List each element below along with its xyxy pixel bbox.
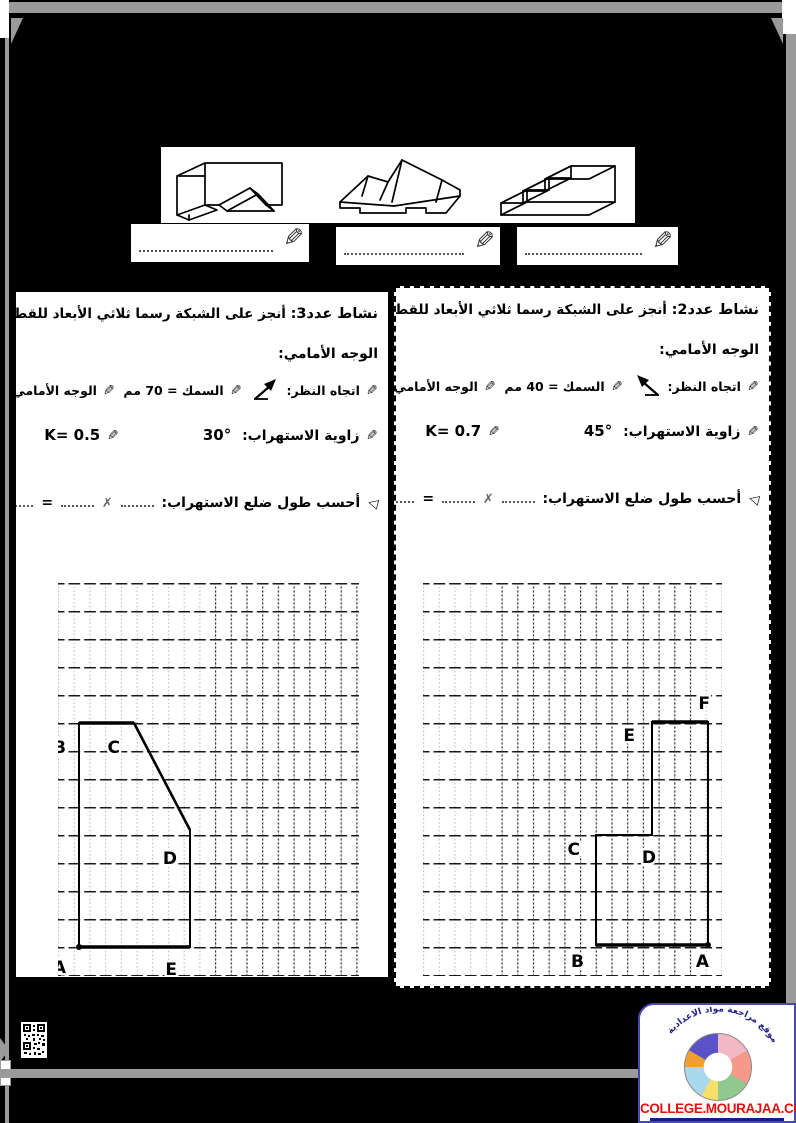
angle-value: 45° bbox=[584, 420, 612, 443]
equals-sign: = bbox=[422, 491, 434, 507]
arrow-bullet-icon: ◁ bbox=[747, 489, 762, 510]
pencil-icon: ✎ bbox=[747, 377, 759, 398]
pencil-icon: ✎ bbox=[366, 381, 378, 402]
isometric-shape-1 bbox=[167, 149, 317, 221]
thickness-item: ✎ السمك = 40 مم bbox=[500, 379, 623, 394]
isometric-figures-box bbox=[161, 147, 635, 223]
vertex-dot-A bbox=[705, 942, 711, 948]
vertex-label-E: E bbox=[165, 960, 177, 979]
dotted-answer-line bbox=[525, 253, 642, 255]
activity-3-panel: نشاط عدد3: أنجز على الشبكة رسما ثلاثي ال… bbox=[14, 290, 390, 979]
angle-label: زاوية الاستهراب: bbox=[242, 428, 359, 444]
arrow-bullet-icon: ◁ bbox=[366, 493, 381, 514]
site-url-text: COLLEGE.MOURAJAA.COM bbox=[640, 1101, 794, 1116]
activity-number: نشاط عدد2: bbox=[672, 302, 759, 318]
pencil-icon: ✎ bbox=[652, 228, 673, 253]
activity-3-specs: ✎ اتجاه النظر: ✎ السمك = 70 مم ✎ الوجه ا… bbox=[24, 377, 378, 402]
angle-item: ✎ زاوية الاستهراب: 30° bbox=[203, 424, 378, 447]
activity-2-angle-line: ✎ زاوية الاستهراب: 45° ✎ K= 0.7 bbox=[404, 420, 759, 443]
thickness-item: ✎ السمك = 70 مم bbox=[119, 383, 242, 398]
isometric-shape-2 bbox=[330, 150, 470, 220]
view-direction-label: اتجاه النظر: bbox=[667, 379, 740, 394]
activity-number: نشاط عدد3: bbox=[291, 306, 378, 322]
pencil-icon: ✎ bbox=[103, 381, 115, 402]
vertex-label-E: E bbox=[623, 726, 635, 746]
scan-top-bar bbox=[0, 2, 796, 13]
isometric-shape-3 bbox=[483, 150, 629, 220]
pencil-icon: ✎ bbox=[484, 377, 496, 398]
answer-box-3: ✎ bbox=[517, 227, 678, 265]
k-value: K= 0.5 bbox=[44, 424, 100, 447]
thickness-value: السمك = 40 مم bbox=[504, 379, 604, 394]
pencil-icon: ✎ bbox=[474, 228, 495, 253]
multiply-sign: ✗ bbox=[483, 492, 494, 507]
blank-field bbox=[502, 490, 535, 503]
scan-right-strip bbox=[786, 0, 796, 1123]
worksheet-page: ✎ ✎ ✎ نشاط عدد2: أنجز على الشبكة رسما ثل… bbox=[0, 0, 796, 1123]
vertex-label-B: B bbox=[58, 738, 66, 758]
blank-field bbox=[442, 490, 475, 503]
scan-bottom-band bbox=[0, 1069, 640, 1078]
grid-dark-band bbox=[203, 583, 359, 976]
vertex-label-D: D bbox=[642, 848, 656, 868]
subjects-wheel-logo bbox=[684, 1033, 752, 1101]
answer-box-1: ✎ bbox=[131, 224, 309, 262]
front-face-label: الوجه الأمامي: bbox=[14, 383, 97, 398]
dotted-answer-line bbox=[139, 250, 273, 252]
thickness-value: السمك = 70 مم bbox=[123, 383, 223, 398]
activity-2-compute-line: ◁ أحسب طول ضلع الاستهراب: ✗ = bbox=[404, 489, 759, 510]
angle-value: 30° bbox=[203, 424, 231, 447]
activity-3-compute-line: ◁ أحسب طول ضلع الاستهراب: ✗ = bbox=[24, 493, 378, 514]
view-direction-item: ✎ اتجاه النظر: bbox=[627, 379, 759, 394]
activity-3-title: نشاط عدد3: أنجز على الشبكة رسما ثلاثي ال… bbox=[24, 304, 378, 326]
view-direction-arrow-up-left-icon bbox=[633, 373, 661, 398]
pencil-icon: ✎ bbox=[366, 426, 378, 447]
scan-corner-top-right bbox=[782, 0, 796, 34]
k-item: ✎ K= 0.5 bbox=[44, 424, 119, 447]
view-direction-arrow-up-right-icon bbox=[252, 377, 280, 402]
answer-box-2: ✎ bbox=[336, 227, 500, 265]
view-direction-item: ✎ اتجاه النظر: bbox=[246, 383, 378, 398]
activity-2-title: نشاط عدد2: أنجز على الشبكة رسما ثلاثي ال… bbox=[404, 300, 759, 322]
qr-code bbox=[21, 1022, 47, 1058]
vertex-label-C: C bbox=[568, 840, 580, 860]
front-face-item: ✎ الوجه الأمامي: ABCDE bbox=[14, 383, 115, 398]
k-value: K= 0.7 bbox=[425, 420, 481, 443]
vertex-label-A: A bbox=[696, 952, 710, 972]
pencil-icon: ✎ bbox=[107, 426, 119, 447]
activity-3-grid: B C D A E bbox=[58, 583, 359, 979]
activity-title-text: أنجز على الشبكة رسما ثلاثي الأبعاد للقطع… bbox=[14, 306, 286, 322]
compute-label: أحسب طول ضلع الاستهراب: bbox=[162, 495, 361, 511]
blank-field bbox=[61, 494, 94, 507]
activity-3-angle-line: ✎ زاوية الاستهراب: 30° ✎ K= 0.5 bbox=[24, 424, 378, 447]
scan-corner-top-left bbox=[0, 0, 9, 38]
site-logo-box: موقع مراجعة مواد الاعدادية COLLEGE.MOURA… bbox=[638, 1003, 796, 1123]
vertex-label-F: F bbox=[698, 694, 710, 714]
angle-label: زاوية الاستهراب: bbox=[623, 424, 740, 440]
activity-2-panel: نشاط عدد2: أنجز على الشبكة رسما ثلاثي ال… bbox=[394, 286, 771, 988]
activity-3-title-line2: الوجه الأمامي: bbox=[24, 344, 378, 365]
angle-item: ✎ زاوية الاستهراب: 45° bbox=[584, 420, 759, 443]
front-face-label: الوجه الأمامي: bbox=[394, 379, 478, 394]
vertex-dot-A bbox=[76, 944, 82, 950]
blank-field bbox=[14, 494, 33, 507]
equals-sign: = bbox=[41, 495, 53, 511]
pencil-icon: ✎ bbox=[283, 225, 304, 250]
multiply-sign: ✗ bbox=[102, 496, 113, 511]
vertex-label-A: A bbox=[58, 958, 67, 978]
activity-title-text: أنجز على الشبكة رسما ثلاثي الأبعاد للقطع… bbox=[394, 302, 667, 318]
vertex-label-D: D bbox=[163, 849, 177, 869]
front-face-item: ✎ الوجه الأمامي: ABCDEF bbox=[394, 379, 496, 394]
vertex-label-B: B bbox=[571, 952, 584, 972]
compute-label: أحسب طول ضلع الاستهراب: bbox=[543, 491, 742, 507]
vertex-label-C: C bbox=[108, 738, 120, 758]
activity-2-grid: F E C D B A bbox=[423, 583, 722, 981]
pencil-icon: ✎ bbox=[611, 377, 623, 398]
pencil-icon: ✎ bbox=[488, 422, 500, 443]
pencil-icon: ✎ bbox=[230, 381, 242, 402]
dotted-answer-line bbox=[344, 253, 464, 255]
activity-2-title-line2: الوجه الأمامي: bbox=[404, 340, 759, 361]
scan-fold-triangle-top-right bbox=[771, 18, 783, 44]
view-direction-label: اتجاه النظر: bbox=[286, 383, 359, 398]
site-url-underline bbox=[650, 1118, 784, 1121]
scan-fold-triangle-top-left bbox=[11, 18, 23, 44]
scan-left-strip bbox=[5, 13, 9, 1123]
pencil-icon: ✎ bbox=[747, 422, 759, 443]
blank-field bbox=[121, 494, 154, 507]
blank-field bbox=[394, 490, 414, 503]
activity-2-specs: ✎ اتجاه النظر: ✎ السمك = 40 مم ✎ الوجه ا… bbox=[404, 373, 759, 398]
k-item: ✎ K= 0.7 bbox=[425, 420, 500, 443]
